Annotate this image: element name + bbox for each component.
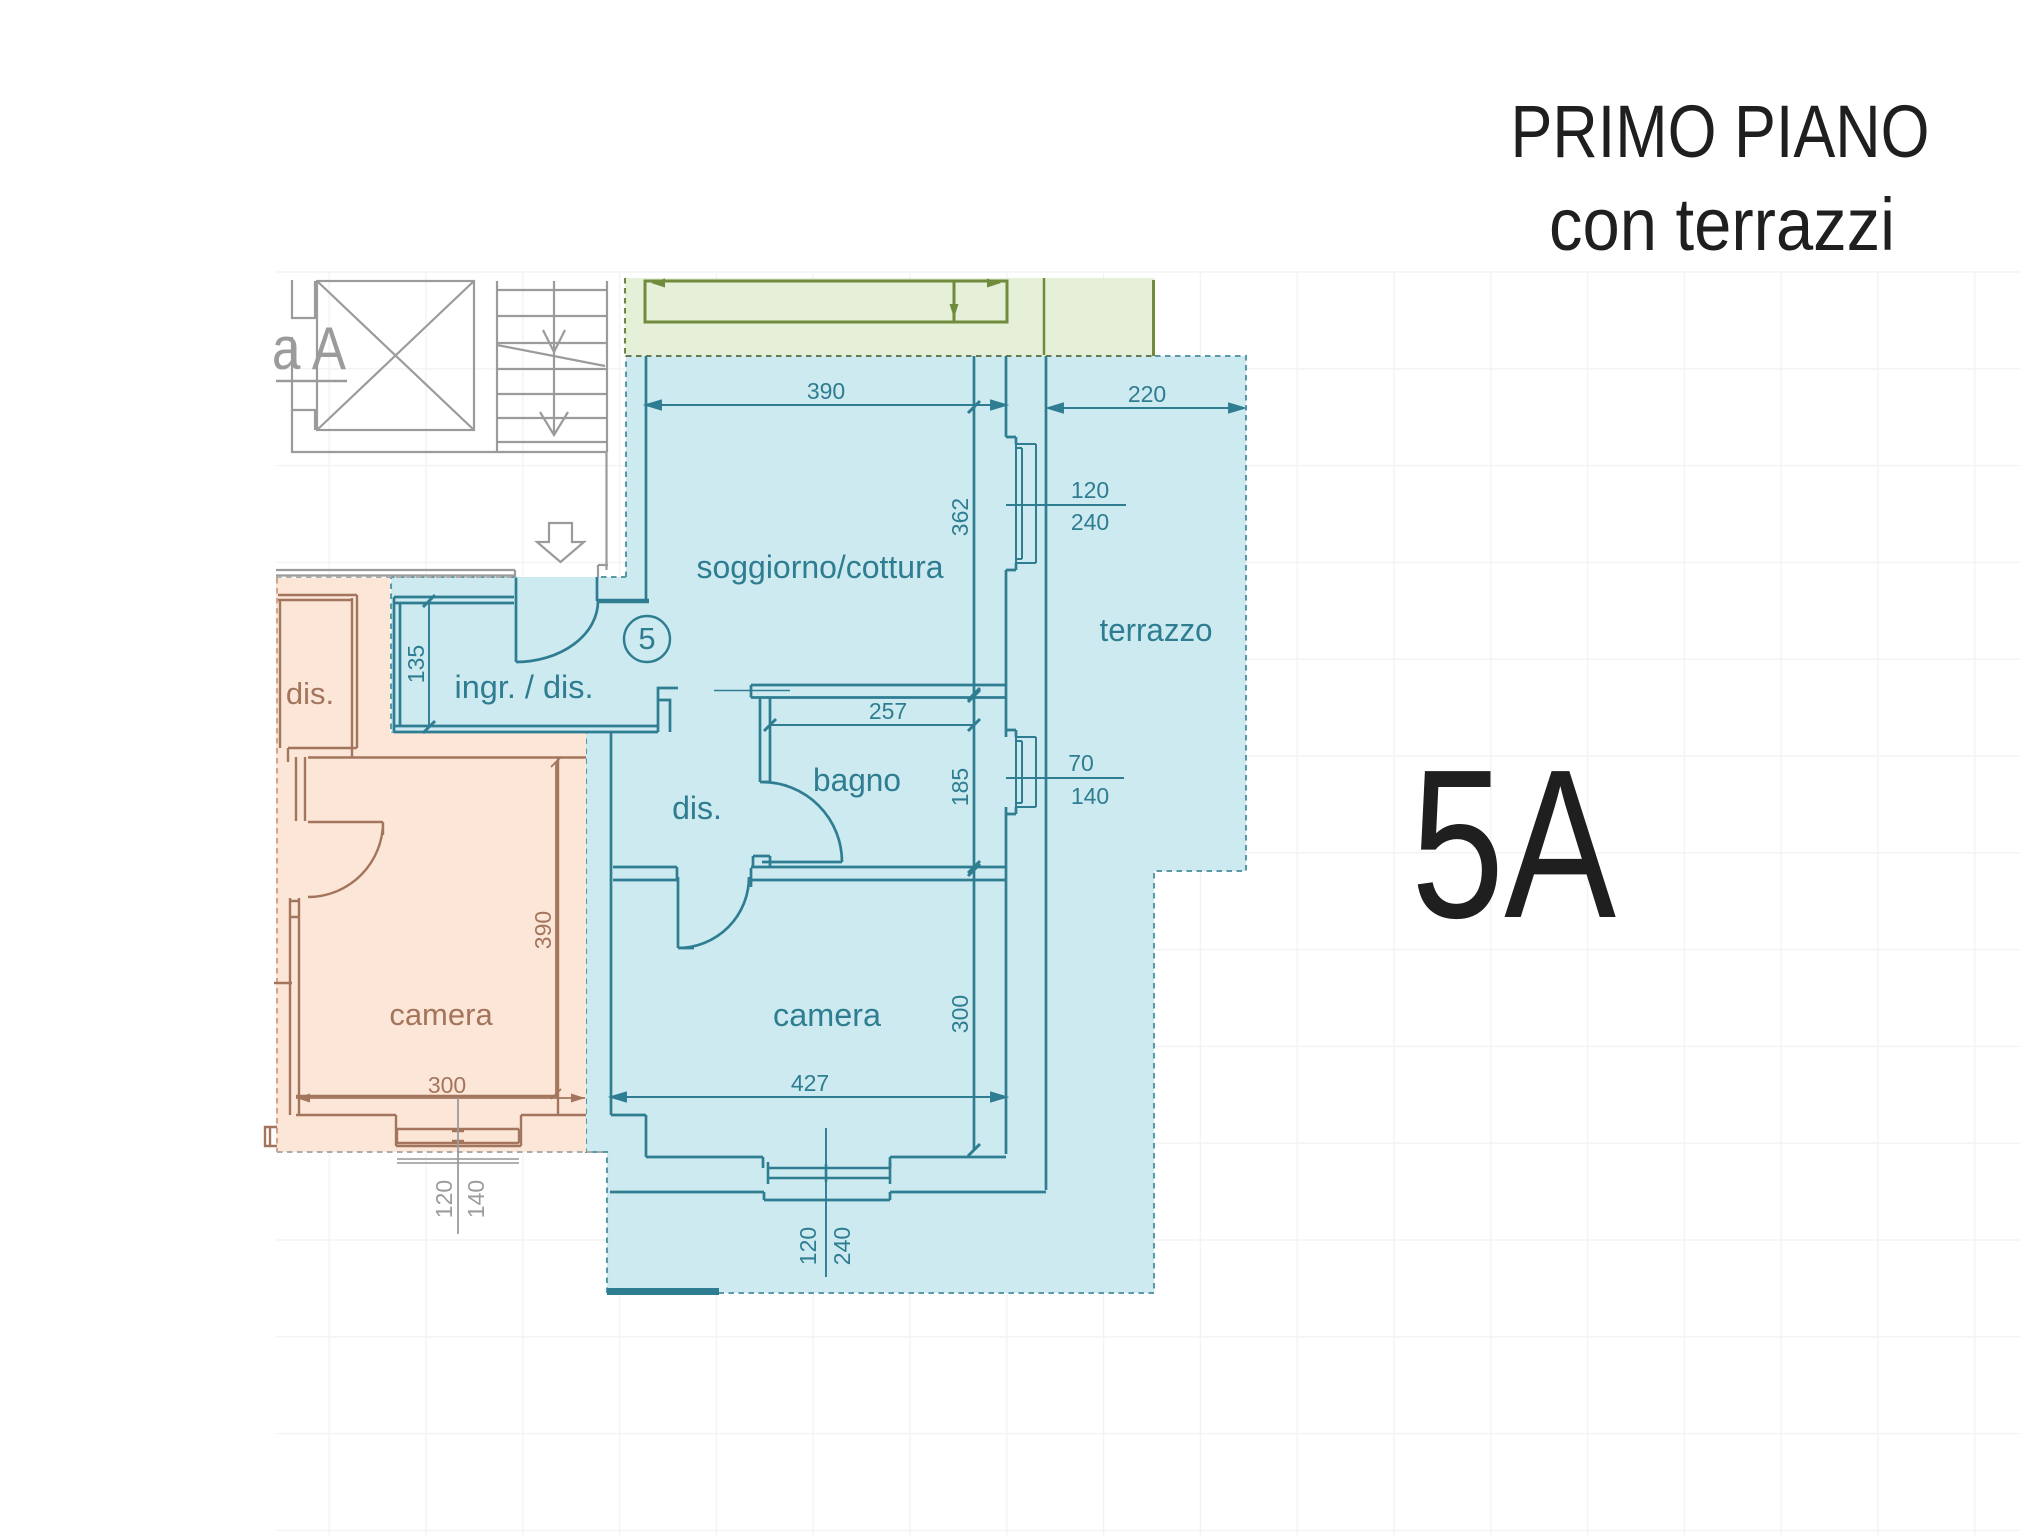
svg-text:con terrazzi: con terrazzi xyxy=(1549,183,1895,266)
svg-text:135: 135 xyxy=(403,645,429,683)
svg-text:140: 140 xyxy=(463,1180,489,1218)
svg-text:240: 240 xyxy=(829,1227,855,1265)
svg-text:120: 120 xyxy=(431,1180,457,1218)
svg-text:camera: camera xyxy=(773,997,881,1033)
svg-text:5A: 5A xyxy=(1411,725,1616,962)
svg-text:362: 362 xyxy=(947,498,973,536)
svg-text:bagno: bagno xyxy=(813,762,901,798)
svg-text:390: 390 xyxy=(530,911,556,949)
svg-text:257: 257 xyxy=(869,698,907,724)
svg-text:427: 427 xyxy=(791,1070,829,1096)
svg-text:120: 120 xyxy=(795,1227,821,1265)
svg-text:5: 5 xyxy=(638,621,655,656)
svg-text:300: 300 xyxy=(428,1072,466,1098)
svg-text:70: 70 xyxy=(1068,750,1094,776)
svg-text:dis.: dis. xyxy=(286,676,334,711)
svg-text:camera: camera xyxy=(389,997,493,1032)
svg-text:terrazzo: terrazzo xyxy=(1100,612,1213,648)
svg-text:dis.: dis. xyxy=(672,790,722,826)
svg-text:soggiorno/cottura: soggiorno/cottura xyxy=(697,549,944,585)
svg-text:PRIMO PIANO: PRIMO PIANO xyxy=(1511,90,1930,173)
svg-text:a A: a A xyxy=(272,315,346,382)
svg-text:300: 300 xyxy=(947,995,973,1033)
svg-text:390: 390 xyxy=(807,378,845,404)
svg-text:ingr. / dis.: ingr. / dis. xyxy=(455,669,594,705)
svg-text:185: 185 xyxy=(947,768,973,806)
svg-text:120: 120 xyxy=(1071,477,1109,503)
svg-text:140: 140 xyxy=(1071,783,1109,809)
svg-text:220: 220 xyxy=(1128,381,1166,407)
svg-text:240: 240 xyxy=(1071,509,1109,535)
